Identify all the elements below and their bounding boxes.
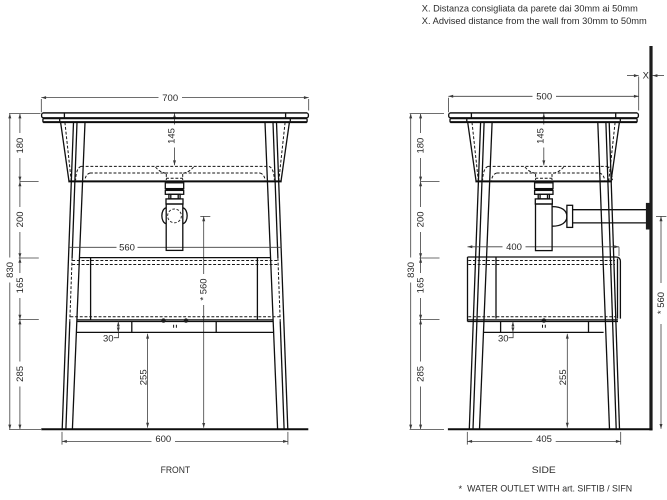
svg-text:400: 400: [506, 242, 522, 253]
svg-text:* 560: * 560: [199, 278, 210, 300]
svg-text:600: 600: [155, 434, 171, 445]
svg-text:165: 165: [416, 277, 427, 293]
svg-text:830: 830: [406, 262, 417, 278]
svg-text:X. Advised distance from the w: X. Advised distance from the wall from 3…: [422, 15, 647, 26]
svg-text:180: 180: [416, 138, 427, 154]
svg-text:700: 700: [162, 93, 178, 104]
svg-text:* 560: * 560: [656, 292, 667, 314]
svg-text:30: 30: [498, 333, 509, 344]
svg-text:X. Distanza consigliata da par: X. Distanza consigliata da parete dai 30…: [422, 3, 638, 14]
svg-text:SIDE: SIDE: [532, 464, 556, 475]
svg-text:145: 145: [166, 128, 177, 144]
svg-text:FRONT: FRONT: [161, 464, 191, 475]
svg-text:830: 830: [5, 262, 16, 278]
svg-text:30: 30: [103, 333, 114, 344]
svg-text:285: 285: [15, 366, 26, 382]
svg-text:285: 285: [416, 366, 427, 382]
svg-text:WATER OUTLET WITH art. SIFTIB: WATER OUTLET WITH art. SIFTIB / SIFN: [467, 483, 632, 494]
svg-text:X: X: [643, 70, 650, 81]
svg-text:*: *: [459, 483, 463, 494]
svg-text:180: 180: [15, 138, 26, 154]
svg-text:255: 255: [558, 369, 569, 385]
svg-text:500: 500: [536, 92, 552, 103]
svg-text:560: 560: [119, 242, 135, 253]
svg-text:200: 200: [416, 211, 427, 227]
svg-text:165: 165: [15, 277, 26, 293]
svg-text:145: 145: [536, 128, 547, 144]
svg-text:255: 255: [138, 369, 149, 385]
svg-text:405: 405: [536, 434, 552, 445]
svg-text:200: 200: [15, 211, 26, 227]
